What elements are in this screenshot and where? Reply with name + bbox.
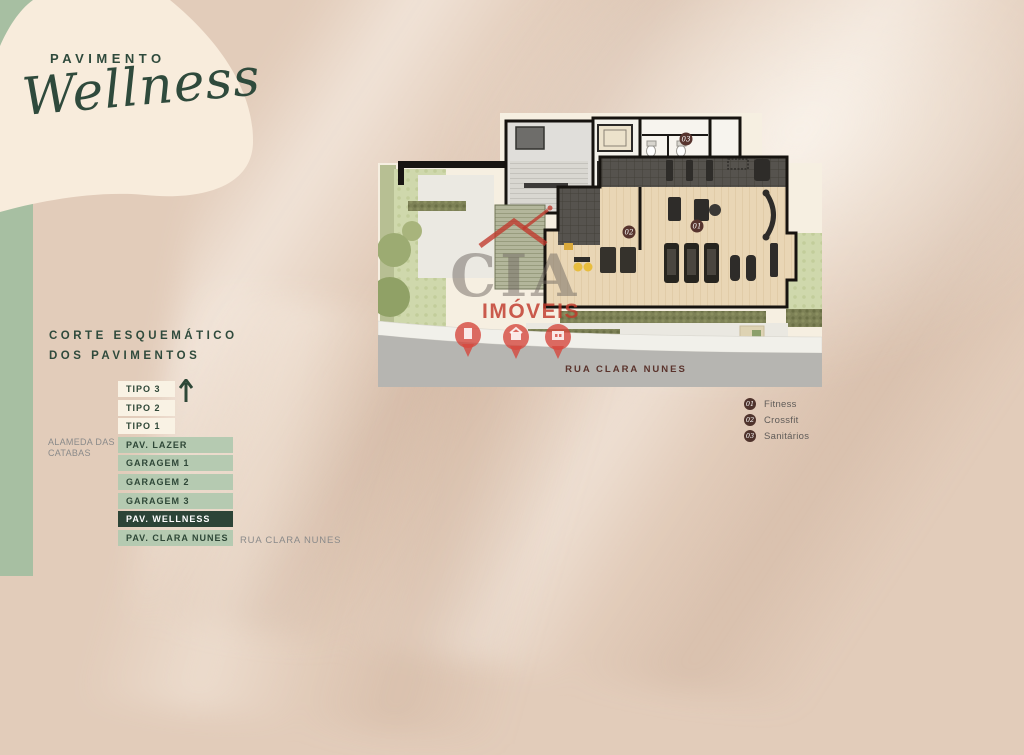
section-heading: CORTE ESQUEMÁTICO DOS PAVIMENTOS <box>49 326 238 366</box>
legend-label: Sanitários <box>764 431 809 442</box>
marker-sanitarios: 03 <box>682 136 691 144</box>
legend-number-badge: 02 <box>744 414 756 426</box>
marker-fitness: 01 <box>693 223 702 231</box>
street-label-line2: CATABAS <box>48 448 115 459</box>
floor-row-pav-lazer: PAV. LAZER <box>118 437 233 453</box>
street-label-alameda: ALAMEDA DAS CATABAS <box>48 437 115 459</box>
legend-label: Crossfit <box>764 415 799 426</box>
plan-legend: 01 Fitness 02 Crossfit 03 Sanitários <box>744 398 809 446</box>
section-heading-line1: CORTE ESQUEMÁTICO <box>49 326 238 346</box>
plan-street-name: RUA CLARA NUNES <box>565 364 687 375</box>
wellness-floor-plan: RUA CLARA NUNES <box>378 113 822 387</box>
section-heading-line2: DOS PAVIMENTOS <box>49 346 238 366</box>
legend-item-fitness: 01 Fitness <box>744 398 809 410</box>
floor-row-garagem-3: GARAGEM 3 <box>118 493 233 509</box>
floor-row-garagem-2: GARAGEM 2 <box>118 474 233 490</box>
floor-row-label: TIPO 3 <box>126 384 161 394</box>
street-label-rua-clara-nunes: RUA CLARA NUNES <box>240 535 341 546</box>
legend-number-badge: 01 <box>744 398 756 410</box>
floor-row-pav-wellness: PAV. WELLNESS <box>118 511 233 527</box>
watermark-word: IMÓVEIS <box>482 299 580 323</box>
up-arrow-icon <box>179 379 193 403</box>
floor-row-pav-clara-nunes: PAV. CLARA NUNES <box>118 530 233 546</box>
floor-row-label: TIPO 1 <box>126 421 161 431</box>
legend-label: Fitness <box>764 399 797 410</box>
street-label-line1: ALAMEDA DAS <box>48 437 115 448</box>
floor-row-label: TIPO 2 <box>126 403 161 413</box>
floor-row-tipo-1: TIPO 1 <box>118 418 175 434</box>
legend-number-badge: 03 <box>744 430 756 442</box>
floor-row-label: GARAGEM 2 <box>126 477 190 487</box>
floor-stack-diagram: TIPO 3 TIPO 2 TIPO 1 PAV. LAZER GARAGEM … <box>118 381 233 548</box>
floor-row-tipo-2: TIPO 2 <box>118 400 175 416</box>
floor-row-label: GARAGEM 1 <box>126 458 190 468</box>
floor-row-label: PAV. WELLNESS <box>126 514 210 524</box>
floor-row-label: PAV. LAZER <box>126 440 187 450</box>
wellness-floor-slide: { "header": { "kicker": "PAVIMENTO", "ti… <box>0 0 1024 576</box>
legend-item-crossfit: 02 Crossfit <box>744 414 809 426</box>
marker-crossfit: 02 <box>625 229 634 237</box>
floor-row-label: GARAGEM 3 <box>126 496 190 506</box>
floor-row-garagem-1: GARAGEM 1 <box>118 455 233 471</box>
floor-row-label: PAV. CLARA NUNES <box>126 533 229 543</box>
floor-row-tipo-3: TIPO 3 <box>118 381 175 397</box>
legend-item-sanitarios: 03 Sanitários <box>744 430 809 442</box>
